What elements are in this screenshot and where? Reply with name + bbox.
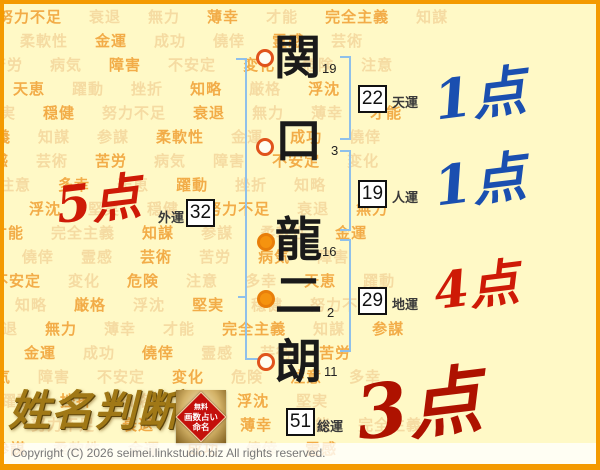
background-word: 危険 <box>127 273 159 290</box>
background-word-row: 衰退無力薄幸才能完全主義知謀参謀 <box>0 318 431 339</box>
background-word: 注意 <box>0 177 31 194</box>
background-word: 注意 <box>186 273 218 290</box>
background-word: 知謀 <box>142 225 174 242</box>
background-word: 参謀 <box>201 225 233 242</box>
chiun-value-box: 29 <box>358 287 387 315</box>
background-word: 穏健 <box>0 417 4 434</box>
tenun-label: 天運 <box>392 92 418 111</box>
seal-line-2: 画数占い <box>184 412 218 422</box>
background-word: 厳格 <box>0 201 2 218</box>
background-word: 知謀 <box>38 129 70 146</box>
background-word: 僥倖 <box>213 33 245 50</box>
background-word: 浮沈 <box>237 393 269 410</box>
background-word-row: 病気障害不安定変化危険注意多幸 <box>0 366 408 387</box>
background-word: 金運 <box>95 33 127 50</box>
background-word: 才能 <box>0 225 24 242</box>
odd-stroke-circle <box>256 138 274 156</box>
jinun-bracket-tick-bottom <box>340 229 351 231</box>
background-word: 無力 <box>148 9 180 26</box>
tenun-bracket-tick-top <box>340 56 351 58</box>
free-naming-seal-banner[interactable]: 無料 画数占い 命名 <box>176 390 226 444</box>
jinun-value-box: 19 <box>358 180 387 208</box>
name-char-5: 朗 <box>275 338 322 385</box>
gaiun-bracket-tick-mid <box>238 296 247 298</box>
jinun-score: 1点 <box>431 149 528 214</box>
background-word: 僥倖 <box>142 345 174 362</box>
chiun-bracket-line <box>349 239 351 352</box>
jinun-label: 人運 <box>392 187 418 206</box>
background-word: 才能 <box>163 321 195 338</box>
even-stroke-circle <box>257 290 275 308</box>
name-char-4: 二 <box>275 272 322 319</box>
background-word: 苦労 <box>199 249 231 266</box>
seal-line-1: 無料 <box>194 404 208 412</box>
background-word-row: 完全主義知謀参謀柔軟性金運成功僥倖 <box>0 126 408 147</box>
background-word: 金運 <box>24 345 56 362</box>
background-word: 柔軟性 <box>156 129 204 146</box>
gaiun-score: 5点 <box>53 171 143 231</box>
jinun-bracket-tick-top <box>340 150 351 152</box>
seal-text: 無料 画数占い 命名 <box>176 390 226 444</box>
background-word: 薄幸 <box>240 417 272 434</box>
gaiun-bracket-tick-top <box>236 58 247 60</box>
background-word: 躍動 <box>176 177 208 194</box>
background-word: 躍動 <box>72 81 104 98</box>
background-word: 霊感 <box>201 345 233 362</box>
background-word: 知略 <box>190 81 222 98</box>
background-word: 知略 <box>15 297 47 314</box>
background-word: 苦労 <box>319 345 351 362</box>
background-word: 僥倖 <box>349 129 381 146</box>
background-word: 知謀 <box>416 9 448 26</box>
background-word-row: 苦労病気障害不安定変化危険注意 <box>0 54 420 75</box>
background-word: 成功 <box>154 33 186 50</box>
background-word: 努力不足 <box>102 105 166 122</box>
background-word-row: 努力不足衰退無力薄幸才能完全主義知謀 <box>0 6 475 27</box>
background-word: 変化 <box>68 273 100 290</box>
background-word: 挫折 <box>131 81 163 98</box>
odd-stroke-circle <box>256 49 274 67</box>
background-word: 堅実 <box>0 105 16 122</box>
tenun-score: 1点 <box>431 63 528 128</box>
chiun-bracket-tick-bottom <box>340 350 351 352</box>
stroke-count-4: 2 <box>327 305 334 320</box>
background-word: 芸術 <box>331 33 363 50</box>
gaiun-bracket-line <box>245 58 247 360</box>
site-logo[interactable]: 姓名判断 <box>8 386 180 436</box>
background-word: 知略 <box>294 177 326 194</box>
background-word: 浮沈 <box>133 297 165 314</box>
stroke-count-5: 11 <box>324 364 338 379</box>
background-word: 薄幸 <box>207 9 239 26</box>
background-word-row: 参謀柔軟性金運成功僥倖霊感芸術 <box>0 30 390 51</box>
background-word: 病気 <box>0 369 11 386</box>
stroke-count-1: 19 <box>322 61 336 76</box>
stroke-count-3: 16 <box>322 244 336 259</box>
chiun-score: 4点 <box>431 257 521 317</box>
background-word: 病気 <box>154 153 186 170</box>
background-word: 穏健 <box>43 105 75 122</box>
background-word: 僥倖 <box>22 249 54 266</box>
tenun-bracket-tick-bottom <box>340 138 351 140</box>
background-word: 障害 <box>38 369 70 386</box>
soun-label: 総運 <box>317 416 343 435</box>
background-word: 苦労 <box>0 57 23 74</box>
soun-score: 3点 <box>352 363 486 452</box>
background-word: 危険 <box>231 369 263 386</box>
background-word: 障害 <box>109 57 141 74</box>
background-word: 霊感 <box>81 249 113 266</box>
background-word: 柔軟性 <box>20 33 68 50</box>
chiun-bracket-tick-top <box>340 239 351 241</box>
background-word: 薄幸 <box>104 321 136 338</box>
background-word: 多幸 <box>245 273 277 290</box>
background-word: 変化 <box>347 153 379 170</box>
background-word: 天恵 <box>13 81 45 98</box>
jinun-bracket-line <box>349 150 351 231</box>
background-word: 不安定 <box>168 57 216 74</box>
background-word: 霊感 <box>0 153 9 170</box>
background-word: 才能 <box>266 9 298 26</box>
background-word: 努力不足 <box>0 9 62 26</box>
background-word: 衰退 <box>193 105 225 122</box>
tenun-value-box: 22 <box>358 85 387 113</box>
background-word: 不安定 <box>0 273 41 290</box>
background-word: 挫折 <box>235 177 267 194</box>
background-word: 変化 <box>172 369 204 386</box>
background-word-row: 挫折知略厳格浮沈堅実穏健努力不足 <box>0 294 401 315</box>
background-word: 注意 <box>361 57 393 74</box>
background-word: 不安定 <box>97 369 145 386</box>
background-word: 芸術 <box>140 249 172 266</box>
odd-stroke-circle <box>257 353 275 371</box>
name-char-3: 龍 <box>275 216 322 263</box>
even-stroke-circle <box>257 233 275 251</box>
background-word: 参謀 <box>372 321 404 338</box>
background-word: 衰退 <box>89 9 121 26</box>
gaiun-label: 外運 <box>158 207 184 226</box>
background-word: 完全主義 <box>0 129 11 146</box>
chiun-label: 地運 <box>392 294 418 313</box>
name-char-2: 口 <box>275 117 322 164</box>
background-word: 堅実 <box>192 297 224 314</box>
background-word-row: 霊感芸術苦労病気障害不安定変化 <box>0 150 406 171</box>
stroke-count-2: 3 <box>331 143 338 158</box>
background-word: 衰退 <box>0 321 18 338</box>
background-word: 完全主義 <box>325 9 389 26</box>
name-fortune-page: 努力不足衰退無力薄幸才能完全主義知謀参謀柔軟性金運成功僥倖霊感芸術苦労病気障害不… <box>0 0 600 470</box>
seal-line-3: 命名 <box>192 422 209 432</box>
background-word: 厳格 <box>74 297 106 314</box>
gaiun-value-box: 32 <box>186 199 215 227</box>
background-word: 努力不足 <box>206 201 270 218</box>
name-char-1: 関 <box>274 34 321 81</box>
background-word: 芸術 <box>36 153 68 170</box>
tenun-bracket-line <box>349 56 351 140</box>
background-word: 障害 <box>213 153 245 170</box>
background-word: 参謀 <box>97 129 129 146</box>
background-word: 無力 <box>45 321 77 338</box>
copyright-bar: Copyright (C) 2026 seimei.linkstudio.biz… <box>4 443 596 464</box>
soun-value-box: 51 <box>286 408 315 436</box>
background-word: 病気 <box>50 57 82 74</box>
background-word: 成功 <box>83 345 115 362</box>
